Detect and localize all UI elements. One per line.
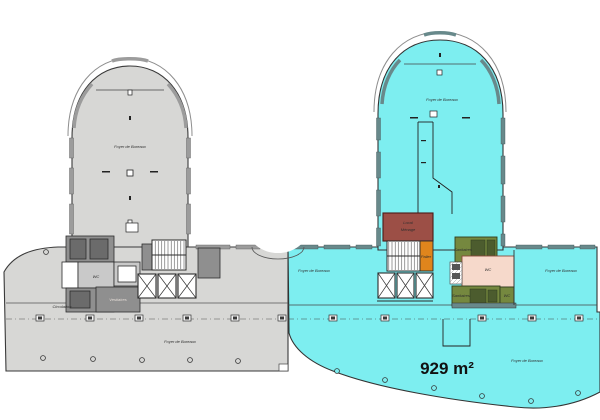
green-small-label: WC — [504, 293, 511, 298]
left-wc-label: WC — [93, 274, 100, 279]
left-building — [4, 58, 288, 371]
area-label: 929 m² — [420, 359, 474, 378]
right-elevator-bank — [377, 273, 433, 301]
floor-plan-svg: Foyer de Bureaux Foyer de Bureaux Circul… — [0, 0, 600, 420]
orange-room-label: Palier — [421, 254, 432, 259]
maroon-room-label-2: Ménage — [401, 227, 416, 232]
right-band-right-label: Foyer de Bureaux — [545, 268, 578, 273]
left-dark-band-label: Vestiaires — [109, 297, 126, 302]
open-area-small-label: Foyer de Bureaux — [511, 358, 544, 363]
right-band-left-label: Foyer de Bureaux — [298, 268, 331, 273]
maroon-room-label-1: Local — [403, 220, 413, 225]
pink-room-label: WC — [485, 267, 492, 272]
green-top-label: Sanitaires — [454, 247, 472, 252]
right-tower-label: Foyer de Bureaux — [426, 97, 459, 102]
left-wing-small-label: Circulation — [53, 304, 73, 309]
left-wing-label: Foyer de Bureaux — [164, 339, 197, 344]
left-wing-step — [279, 364, 288, 371]
left-tower-label: Foyer de Bureaux — [114, 144, 147, 149]
right-stairs — [387, 241, 420, 271]
floor-plan-page: Foyer de Bureaux Foyer de Bureaux Circul… — [0, 0, 600, 420]
left-elevator-bank — [138, 274, 196, 298]
left-stairs — [152, 240, 186, 270]
right-building — [288, 32, 600, 408]
green-bottom-label: Sanitaires — [452, 293, 470, 298]
